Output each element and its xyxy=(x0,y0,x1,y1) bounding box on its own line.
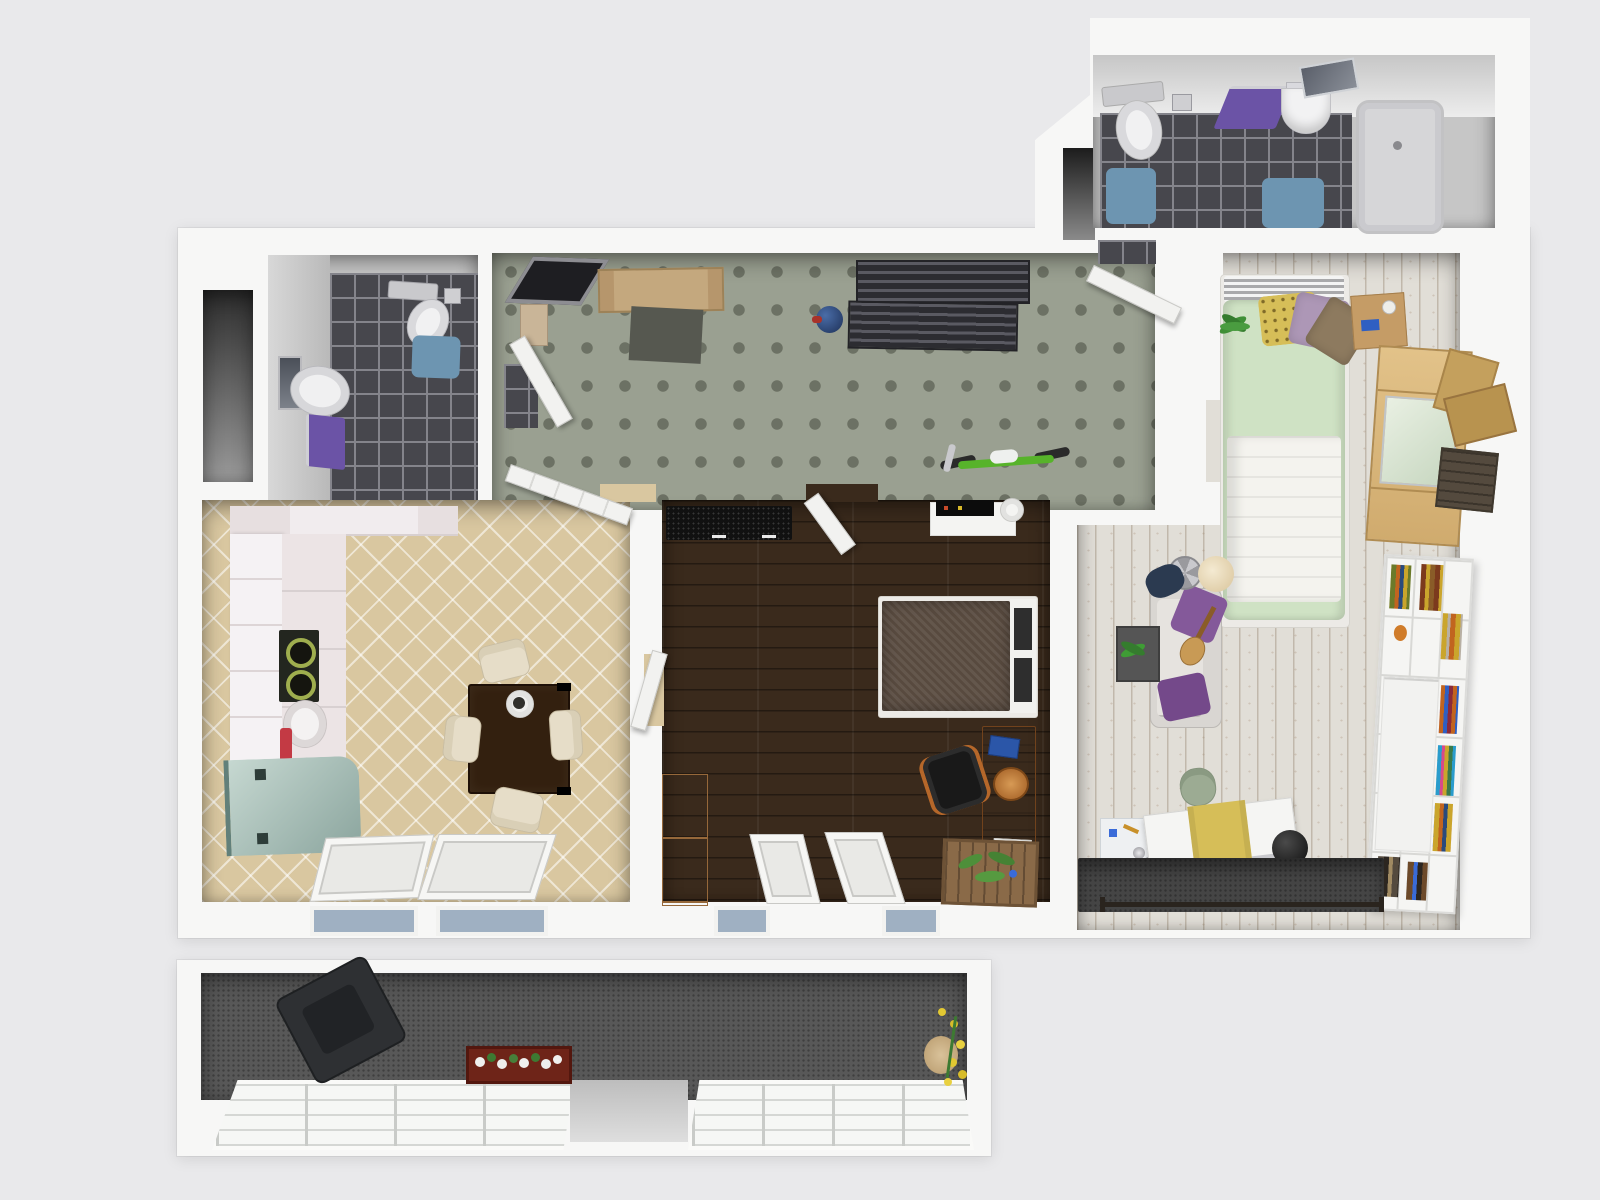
flower-g1 xyxy=(487,1053,496,1062)
floor-plan-stage xyxy=(0,0,1600,1200)
books-3 xyxy=(1441,613,1463,660)
bathtub xyxy=(1356,100,1444,234)
potted-plant xyxy=(1216,306,1252,348)
yflower-6 xyxy=(944,1078,952,1086)
shelf-items-bottom-2 xyxy=(1406,862,1428,901)
flower-w3 xyxy=(519,1058,529,1068)
balcony-window-left xyxy=(212,1080,578,1150)
nightstand-blue-book xyxy=(1361,319,1380,331)
kitchen-tilted-window-2 xyxy=(417,834,556,900)
blue-ball xyxy=(816,306,843,333)
armchair-seat xyxy=(300,983,376,1056)
kitchen-wall-counter xyxy=(230,506,458,536)
toilet-paper-holder xyxy=(1172,94,1192,111)
kitchen-window-sill-2 xyxy=(436,906,548,936)
books-6 xyxy=(1433,803,1453,852)
red-flower-box xyxy=(466,1046,572,1084)
nightstand-lamp xyxy=(1382,300,1397,315)
dinner-plate xyxy=(506,690,534,718)
dining-chair-west xyxy=(442,714,483,764)
dark-crate xyxy=(1435,447,1499,513)
crate-leaf-1 xyxy=(957,851,985,871)
side-table xyxy=(1116,626,1160,682)
stereo xyxy=(936,500,994,516)
coat-rack-upper xyxy=(856,260,1030,304)
flower-w2 xyxy=(497,1059,507,1069)
blue-book xyxy=(988,735,1020,759)
paper-roll xyxy=(1000,498,1024,522)
yflower-1 xyxy=(938,1008,946,1016)
purple-towel-small xyxy=(306,414,345,470)
table-clamp-2 xyxy=(557,787,571,795)
crate-leaf-3 xyxy=(975,870,1006,883)
bread-basket xyxy=(993,767,1029,801)
bathroom-small-tiles xyxy=(330,273,478,510)
appliance-latch-1 xyxy=(255,769,266,780)
bookshelf-doors xyxy=(1375,676,1440,853)
white-blanket xyxy=(1227,436,1341,602)
stove-burner-1 xyxy=(286,638,316,668)
bicycle xyxy=(938,442,1068,488)
stereo-led-2 xyxy=(958,506,962,510)
barbell-bar xyxy=(1102,902,1382,907)
yflower-5 xyxy=(958,1070,967,1079)
sideboard-handle-2 xyxy=(762,535,776,538)
bedroom-window-sill-1 xyxy=(714,906,770,936)
bathroom-large-niche xyxy=(1063,148,1095,240)
yflower-3 xyxy=(956,1040,965,1049)
table-clamp-1 xyxy=(557,683,571,691)
nightstand xyxy=(1350,292,1408,350)
large-bathroom-doorway-glimpse xyxy=(1098,240,1156,264)
blue-bath-mat-2 xyxy=(1262,178,1324,228)
barbell-end-left xyxy=(1100,897,1105,912)
flower-w5 xyxy=(553,1055,562,1064)
grey-doormat xyxy=(629,306,704,364)
books-5 xyxy=(1435,745,1456,796)
books-1 xyxy=(1389,564,1411,609)
storage-niche xyxy=(203,290,253,482)
barbell-end-right xyxy=(1379,897,1384,912)
crate-blue-item xyxy=(1009,870,1017,878)
headboard-slot-1 xyxy=(1014,608,1032,650)
balcony-open-gap xyxy=(570,1080,688,1142)
plant-leaf-3 xyxy=(1220,322,1250,331)
shelf-orange-item xyxy=(1393,625,1407,642)
floor-lamp xyxy=(1198,556,1234,592)
yellow-flowers xyxy=(920,1006,972,1092)
kitchen-tall-cabinets xyxy=(230,534,282,764)
bedroom-window-sill-2 xyxy=(882,906,940,936)
bathtub-drain xyxy=(1393,141,1402,150)
appliance-latch-2 xyxy=(257,833,268,844)
headboard-slot-2 xyxy=(1014,658,1032,702)
guitar-body xyxy=(1175,632,1210,670)
books-2 xyxy=(1419,564,1443,611)
ball-red-patch xyxy=(812,316,822,323)
kitchen-tilted-window-1 xyxy=(309,834,434,902)
coat-rack-lower xyxy=(848,301,1019,352)
plant-crate xyxy=(941,838,1039,907)
flower-w1 xyxy=(475,1057,485,1067)
flower-g2 xyxy=(509,1054,518,1063)
kitchen-window-sill-1 xyxy=(310,906,418,936)
blue-bath-mat xyxy=(1106,168,1156,224)
kitchen-stove xyxy=(279,630,319,702)
toilet-paper-holder-small xyxy=(444,288,461,304)
bed-dark-blanket xyxy=(882,601,1010,711)
bedroom-tall-wardrobe xyxy=(662,774,708,906)
stereo-led-1 xyxy=(944,506,948,510)
black-sideboard xyxy=(666,506,792,540)
flower-w4 xyxy=(541,1059,551,1069)
books-4 xyxy=(1439,685,1459,734)
crate-leaf-2 xyxy=(987,849,1017,868)
plate-food xyxy=(513,697,525,709)
dining-chair-east xyxy=(548,709,583,761)
sideboard-handle-1 xyxy=(712,535,726,538)
art-supply-blue xyxy=(1109,829,1117,837)
bed-headboard xyxy=(1010,599,1036,713)
art-supply-pencils xyxy=(1123,824,1139,834)
flower-g3 xyxy=(531,1053,540,1062)
stove-burner-2 xyxy=(286,670,316,700)
entry-door xyxy=(598,267,725,313)
blue-bath-mat-small xyxy=(411,335,460,379)
